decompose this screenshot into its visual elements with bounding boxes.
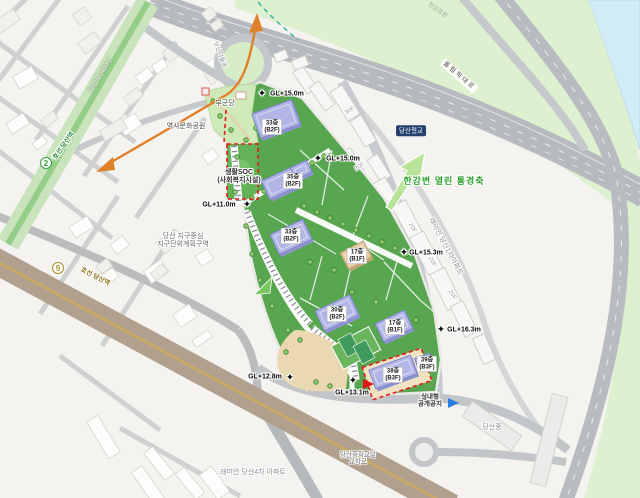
base-map bbox=[0, 0, 640, 498]
site-plan-map: 당산로(40m)호선 당산역호선 당산역당산나들목올림픽대로한강공원당산철교부군… bbox=[0, 0, 640, 498]
bugundang-shrine bbox=[236, 92, 246, 99]
history-park-marker bbox=[202, 88, 209, 95]
